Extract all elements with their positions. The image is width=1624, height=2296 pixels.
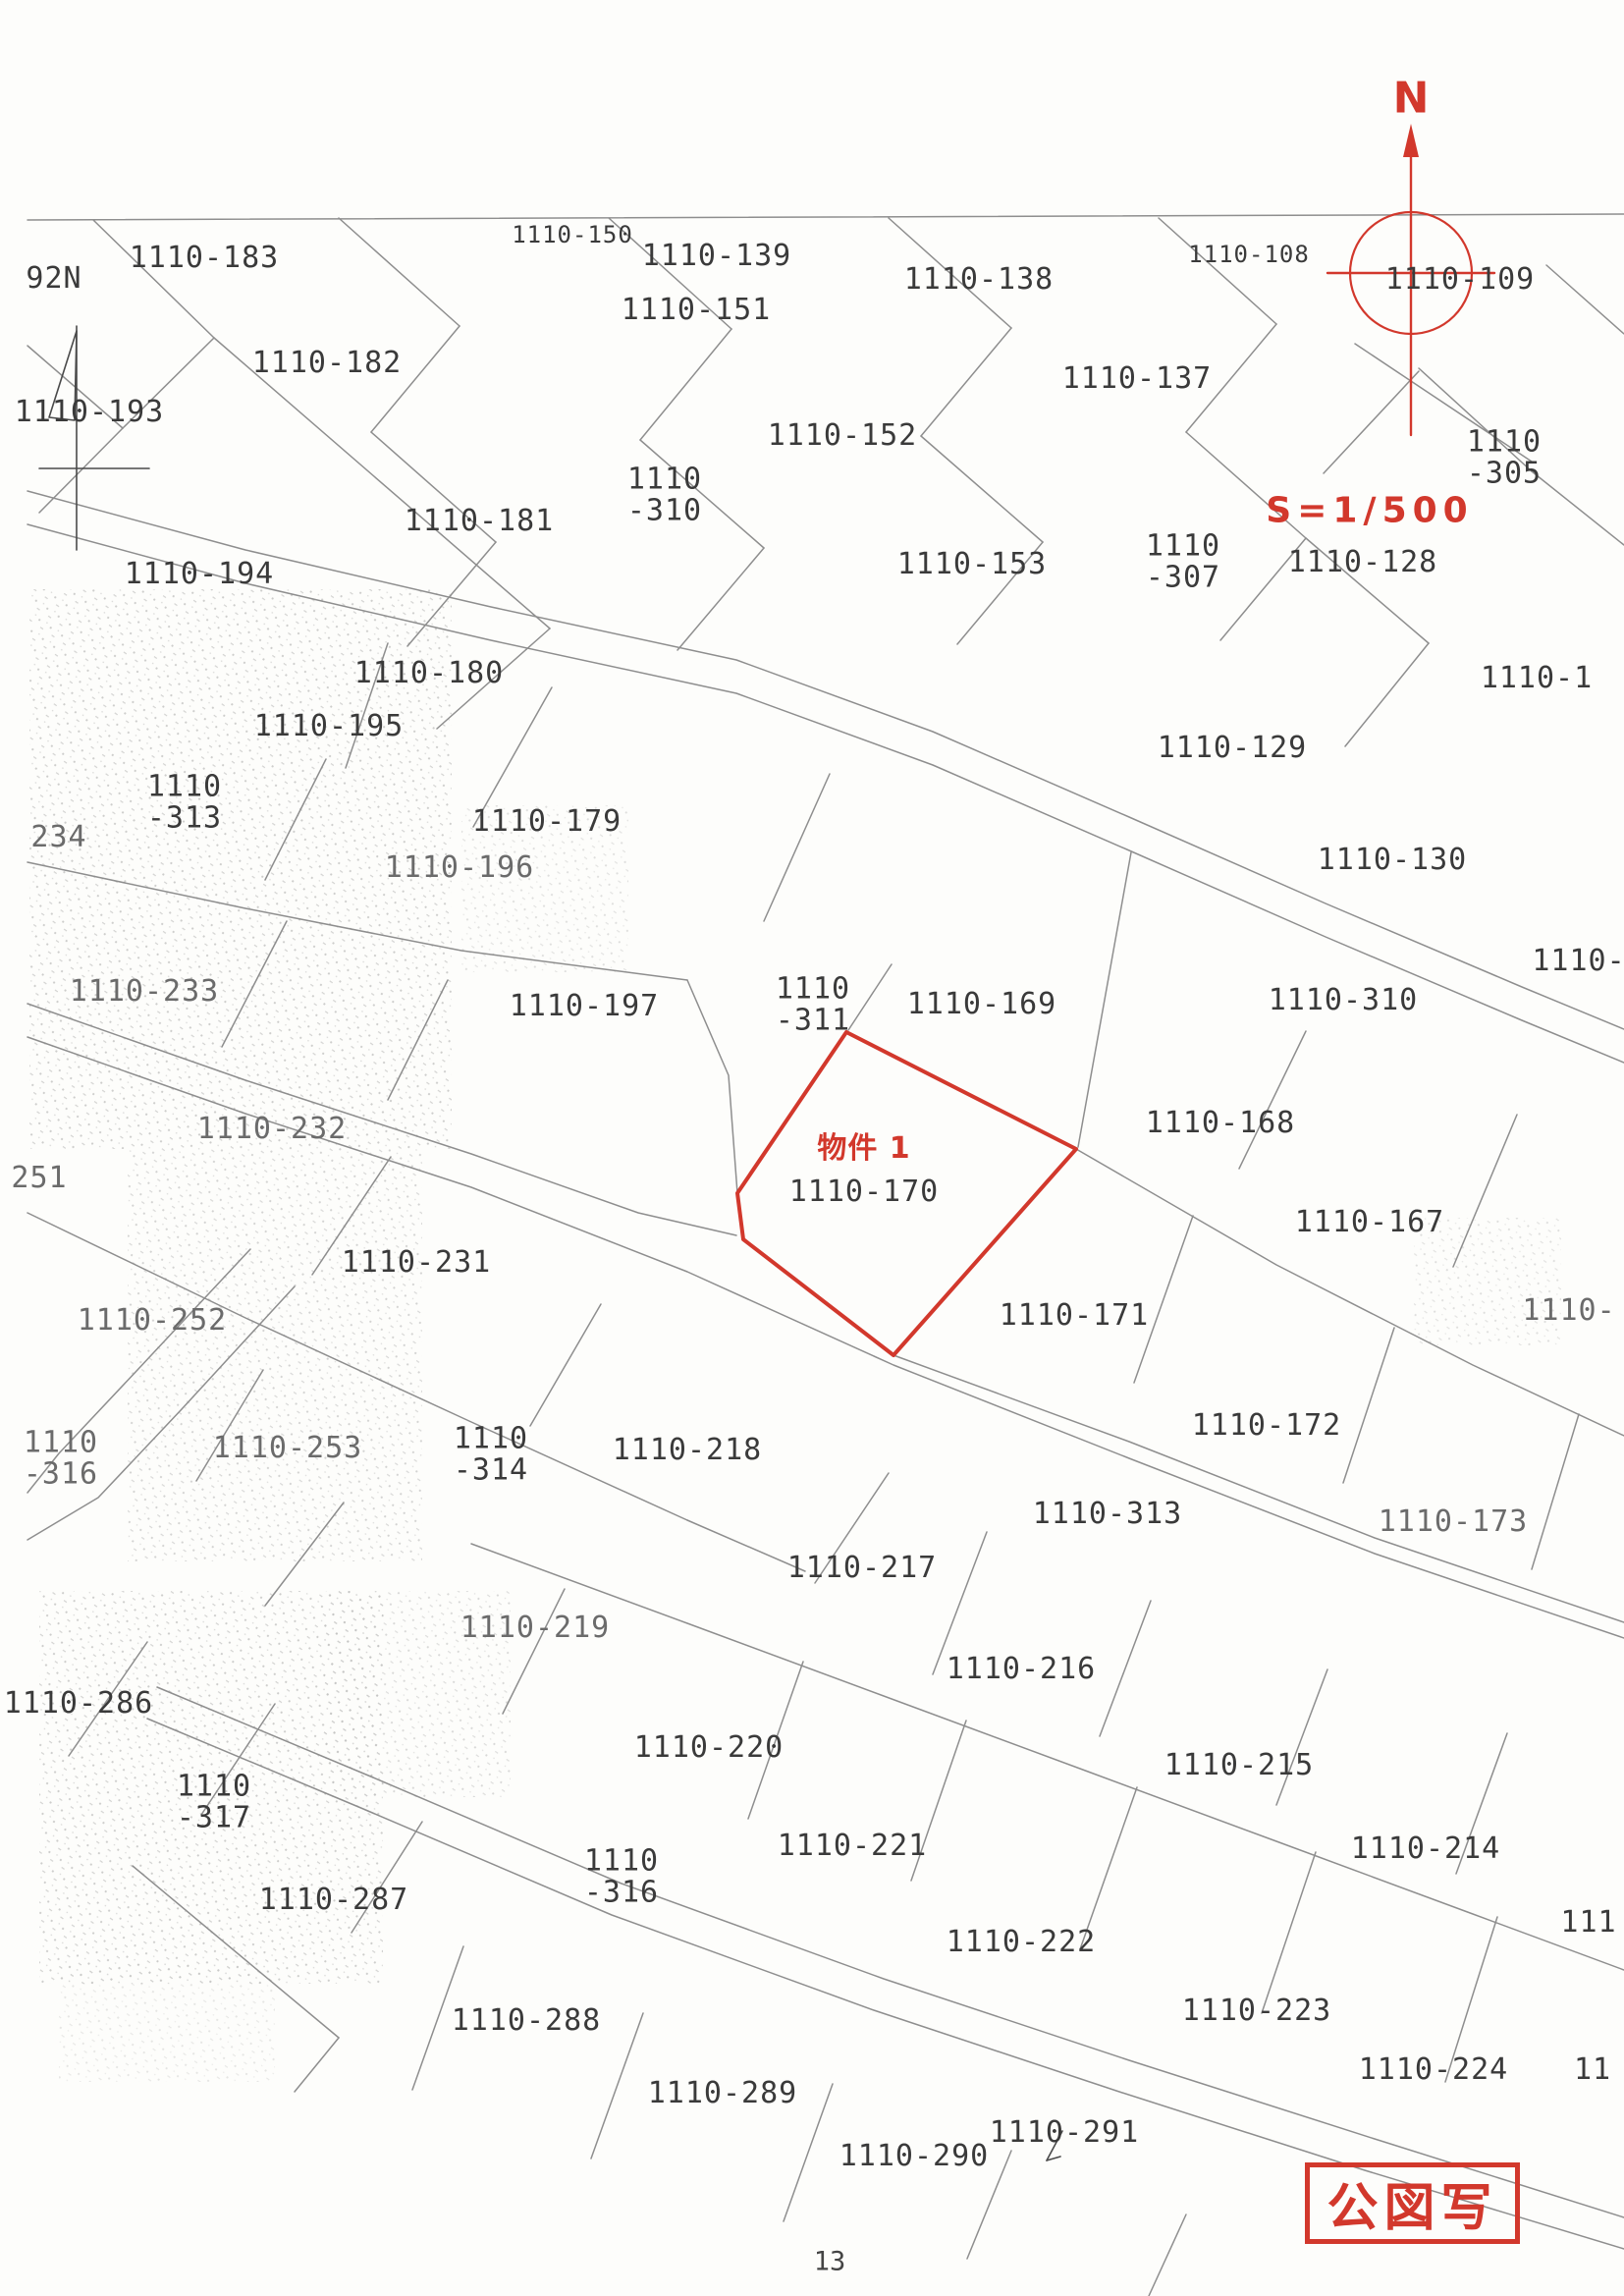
parcel-label: 1110-139	[642, 241, 792, 272]
parcel-label: 1110-219	[460, 1613, 611, 1644]
parcel-label: 1110-193	[15, 397, 165, 428]
parcel-label: 1110-152	[768, 420, 918, 452]
parcel-label: 1110-314	[454, 1424, 528, 1488]
parcel-label: 1110-287	[259, 1885, 409, 1916]
parcel-label: 1110-220	[634, 1732, 785, 1764]
parcel-label: 1110-252	[78, 1305, 228, 1337]
parcel-label: 1110-167	[1295, 1207, 1445, 1238]
parcel-label: 1110-173	[1379, 1506, 1529, 1538]
parcel-label: 1110-194	[125, 559, 275, 590]
parcel-label: 1110-	[1532, 946, 1624, 977]
highlight-parcel-label: 物件 1	[817, 1133, 910, 1165]
parcel-label: 1110-289	[648, 2078, 798, 2109]
parcel-label: 1110-223	[1182, 1995, 1332, 2027]
parcel-label: 1110-129	[1158, 733, 1308, 764]
parcel-label: 1110-224	[1359, 2054, 1509, 2086]
parcel-label: 1110-181	[405, 506, 555, 537]
parcel-label: 1110-109	[1385, 264, 1536, 296]
north-label: N	[1393, 74, 1430, 124]
parcel-label: 1110-232	[197, 1114, 348, 1145]
parcel-label: 1110-195	[254, 711, 405, 742]
parcel-label: 1110-138	[904, 264, 1055, 296]
parcel-label: 92N	[26, 263, 81, 295]
parcel-label: 1110-218	[613, 1435, 763, 1466]
parcel-label: 1110-311	[776, 974, 850, 1038]
parcel-label: 1110-183	[130, 243, 280, 274]
parcel-label: 1110-290	[839, 2141, 990, 2172]
page-number: 13	[814, 2247, 846, 2277]
parcel-label: 1110-150	[512, 223, 633, 248]
parcel-label: 1110-214	[1351, 1833, 1501, 1865]
parcel-label: 1110-221	[778, 1831, 928, 1862]
parcel-label: 1110-153	[897, 549, 1048, 580]
parcel-label: 1110-182	[252, 348, 403, 379]
cadastral-map-page: 92N1110-1831110-1501110-1391110-1511110-…	[0, 0, 1624, 2296]
parcel-label: 1110-179	[472, 806, 623, 838]
parcel-label: 1110-305	[1467, 427, 1542, 491]
parcel-label: 1110-310	[1269, 985, 1419, 1016]
scale-label: S=1/500	[1266, 491, 1473, 531]
parcel-label: 1110-316	[584, 1846, 659, 1910]
parcel-label: 1110-151	[622, 295, 772, 326]
parcel-label: 1110-	[1522, 1295, 1615, 1327]
parcel-label: 1110-216	[947, 1654, 1097, 1685]
parcel-label: 1110-286	[4, 1688, 154, 1720]
parcel-label: 1110-130	[1318, 845, 1468, 876]
parcel-label: 1110-137	[1062, 363, 1213, 395]
parcel-label: 1110-172	[1192, 1410, 1342, 1442]
parcel-label: 1110-196	[385, 852, 535, 884]
parcel-label: 1110-215	[1164, 1750, 1315, 1781]
parcel-label: 1110-169	[907, 989, 1057, 1020]
parcel-label: 1110-291	[990, 2117, 1140, 2149]
parcel-label: 1110-1	[1481, 663, 1593, 694]
parcel-label: 111	[1560, 1907, 1616, 1939]
parcel-label: 1110-313	[147, 772, 222, 836]
parcel-label: 1110-317	[177, 1772, 251, 1835]
parcel-label: 11	[1574, 2054, 1611, 2086]
parcel-label: 1110-253	[213, 1433, 363, 1464]
parcel-label: 1110-197	[510, 991, 660, 1022]
parcel-label: 1110-222	[947, 1927, 1097, 1958]
kozu-stamp: 公図写	[1305, 2162, 1520, 2244]
parcel-label: 1110-168	[1146, 1108, 1296, 1139]
parcel-labels-layer: 92N1110-1831110-1501110-1391110-1511110-…	[0, 0, 1624, 2296]
parcel-label: 1110-217	[787, 1553, 938, 1584]
parcel-label: 234	[30, 822, 86, 853]
parcel-label: 1110-313	[1033, 1499, 1183, 1530]
parcel-label: 1110-231	[342, 1247, 492, 1279]
parcel-label: 1110-171	[1000, 1300, 1150, 1332]
parcel-label: 1110-288	[452, 2005, 602, 2037]
parcel-label: 1110-310	[627, 465, 702, 528]
parcel-label: 1110-108	[1188, 243, 1310, 268]
parcel-label: 251	[11, 1163, 67, 1194]
parcel-label: 1110-307	[1146, 531, 1220, 595]
parcel-label: 1110-233	[70, 976, 220, 1008]
parcel-label: 1110-180	[354, 658, 505, 689]
parcel-label: 1110-128	[1288, 547, 1438, 578]
parcel-label: 1110-170	[789, 1176, 940, 1208]
parcel-label: 1110-316	[24, 1428, 98, 1492]
